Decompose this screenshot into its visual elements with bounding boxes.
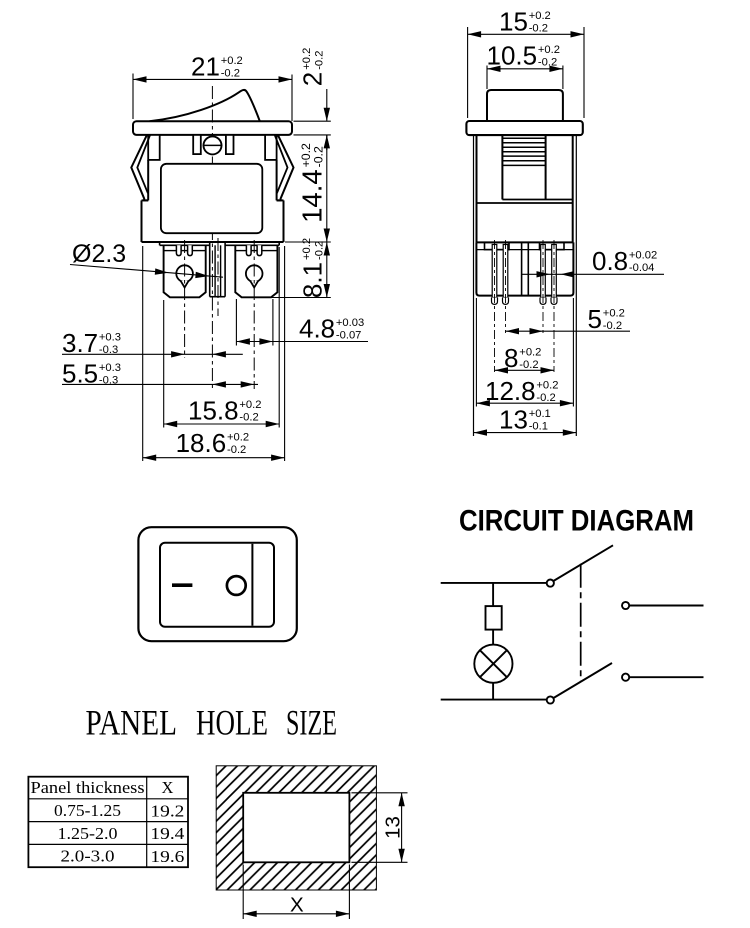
svg-text:SIZE: SIZE: [286, 703, 337, 743]
svg-text:-0.2: -0.2: [519, 359, 538, 371]
svg-text:3.7: 3.7: [62, 328, 98, 358]
svg-text:Ø2.3: Ø2.3: [72, 240, 126, 268]
svg-text:1.25-2.0: 1.25-2.0: [58, 824, 118, 843]
svg-text:21: 21: [191, 52, 220, 82]
svg-text:8.1: 8.1: [298, 262, 328, 298]
svg-text:8: 8: [504, 343, 518, 373]
svg-text:+0.2: +0.2: [536, 380, 558, 392]
svg-text:19.6: 19.6: [150, 847, 184, 866]
svg-text:12.8: 12.8: [485, 376, 536, 406]
svg-text:13: 13: [382, 816, 405, 839]
svg-text:19.4: 19.4: [150, 824, 184, 843]
svg-text:15.8: 15.8: [188, 396, 239, 426]
svg-text:-0.2: -0.2: [312, 146, 326, 167]
svg-text:-0.1: -0.1: [529, 421, 548, 433]
svg-text:19.2: 19.2: [150, 801, 184, 820]
svg-text:2: 2: [298, 72, 328, 86]
svg-text:+0.2: +0.2: [227, 432, 249, 444]
svg-text:13: 13: [499, 405, 528, 435]
svg-text:+0.2: +0.2: [603, 308, 625, 320]
svg-text:+0.2: +0.2: [239, 399, 261, 411]
svg-text:+0.3: +0.3: [99, 362, 121, 374]
svg-text:PANEL: PANEL: [86, 703, 178, 743]
svg-text:14.4: 14.4: [297, 169, 328, 223]
svg-text:+0.2: +0.2: [529, 10, 551, 22]
svg-text:-0.04: -0.04: [629, 262, 655, 274]
svg-text:-0.2: -0.2: [538, 57, 557, 69]
svg-text:+0.03: +0.03: [336, 317, 364, 329]
svg-text:0.75-1.25: 0.75-1.25: [54, 801, 121, 820]
svg-text:+0.2: +0.2: [538, 44, 560, 56]
svg-text:+0.1: +0.1: [529, 408, 551, 420]
svg-text:10.5: 10.5: [487, 41, 538, 71]
svg-text:5.5: 5.5: [62, 358, 98, 388]
svg-text:18.6: 18.6: [176, 428, 227, 458]
svg-text:-0.2: -0.2: [239, 412, 258, 424]
svg-text:-0.07: -0.07: [336, 329, 362, 341]
svg-text:+0.2: +0.2: [519, 347, 541, 359]
svg-text:-0.2: -0.2: [529, 23, 548, 35]
svg-text:+0.2: +0.2: [301, 48, 313, 70]
svg-text:-0.2: -0.2: [221, 68, 240, 80]
svg-text:X: X: [290, 894, 304, 917]
svg-text:+0.02: +0.02: [629, 249, 657, 261]
svg-text:5: 5: [588, 304, 602, 334]
svg-text:4.8: 4.8: [299, 313, 335, 343]
svg-text:-0.2: -0.2: [314, 51, 326, 70]
svg-text:+0.3: +0.3: [99, 332, 121, 344]
svg-text:0.8: 0.8: [592, 246, 628, 276]
svg-text:CIRCUIT DIAGRAM: CIRCUIT DIAGRAM: [459, 505, 694, 538]
svg-text:-0.2: -0.2: [227, 444, 246, 456]
svg-text:2.0-3.0: 2.0-3.0: [61, 847, 115, 866]
svg-text:X: X: [161, 778, 173, 797]
svg-text:-0.2: -0.2: [314, 241, 326, 260]
svg-text:+0.2: +0.2: [221, 55, 243, 67]
svg-text:Panel thickness: Panel thickness: [31, 778, 145, 797]
svg-text:-0.2: -0.2: [603, 320, 622, 332]
svg-text:15: 15: [499, 7, 528, 37]
svg-text:HOLE: HOLE: [196, 703, 268, 743]
svg-text:-0.2: -0.2: [536, 392, 555, 404]
svg-text:-0.3: -0.3: [99, 374, 118, 386]
svg-text:+0.2: +0.2: [301, 238, 313, 260]
svg-text:-0.3: -0.3: [99, 344, 118, 356]
